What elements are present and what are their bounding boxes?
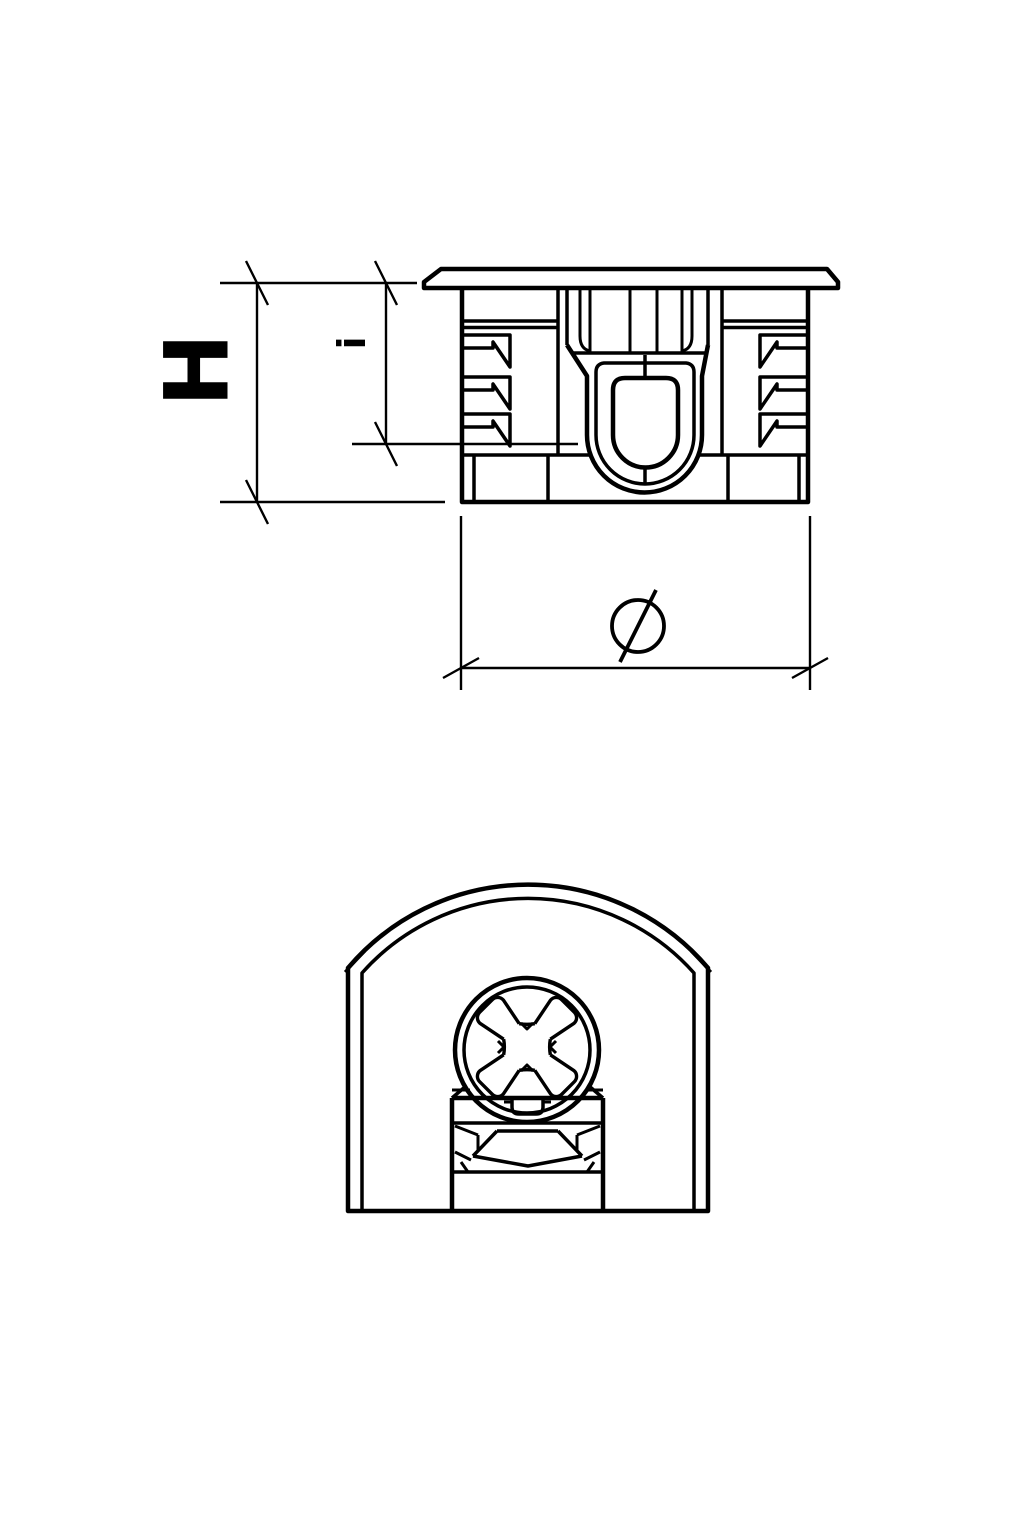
dimension-i: i xyxy=(330,261,578,466)
front-view xyxy=(345,885,711,1211)
drawing-sheet: H i Ø xyxy=(0,0,1024,1536)
cam-boss-outer xyxy=(455,978,599,1122)
cross-notch-marks xyxy=(498,1023,556,1071)
cam-pocket-outer xyxy=(567,345,708,492)
stem-left-bevels xyxy=(455,1126,478,1172)
dimension-diameter: Ø xyxy=(443,516,828,690)
dome-inner xyxy=(362,898,694,1211)
cam-fitting-technical-drawing: H i Ø xyxy=(0,0,1024,1536)
extension-lines-diameter xyxy=(461,516,810,690)
right-barbs xyxy=(760,335,808,446)
left-barbs xyxy=(462,335,510,446)
flange-cap xyxy=(424,269,838,288)
dimensions: H i Ø xyxy=(146,261,829,690)
diameter-symbol: Ø xyxy=(612,590,664,662)
cam-cross-recess xyxy=(445,965,609,1129)
bottom-band xyxy=(462,455,808,502)
side-view xyxy=(424,269,838,502)
cam-slot xyxy=(613,378,678,468)
stem-right-bevels xyxy=(577,1126,600,1172)
stem-center-wedge xyxy=(473,1131,582,1166)
housing-walls xyxy=(567,288,708,345)
dimension-H: H xyxy=(146,261,446,524)
dome-outer xyxy=(348,885,708,1211)
extension-lines-H xyxy=(220,283,445,502)
shoulder-lines xyxy=(462,321,808,328)
housing-ribs xyxy=(580,288,692,352)
i-label: i xyxy=(330,336,374,349)
H-label: H xyxy=(146,333,249,407)
cam-boss-inner xyxy=(464,987,590,1113)
dome-seams xyxy=(345,951,711,972)
